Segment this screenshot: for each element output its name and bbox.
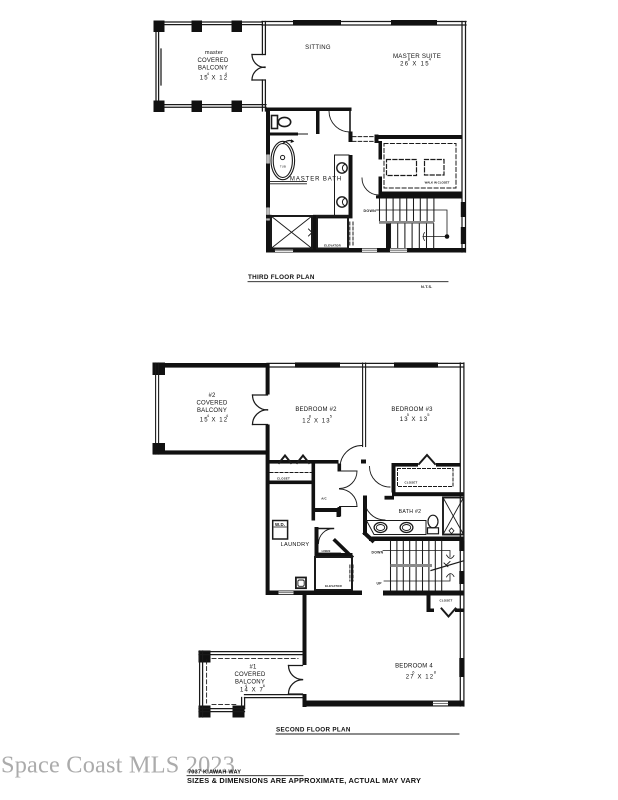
- svg-text:LAUNDRY: LAUNDRY: [281, 542, 310, 548]
- svg-text:N.T.S.: N.T.S.: [421, 285, 433, 289]
- svg-text:DOWN: DOWN: [372, 551, 384, 555]
- svg-text:12 X 13: 12 X 13: [302, 419, 330, 425]
- svg-text:13 X 13: 13 X 13: [400, 417, 428, 423]
- svg-text:LINEN: LINEN: [322, 549, 331, 553]
- svg-text:THIRD FLOOR PLAN: THIRD FLOOR PLAN: [248, 274, 315, 281]
- svg-text:7037 KIAWAH WAY: 7037 KIAWAH WAY: [188, 770, 241, 776]
- svg-text:CLOSET: CLOSET: [405, 481, 418, 485]
- svg-text:BALCONY: BALCONY: [235, 680, 265, 686]
- svg-text:SITTING: SITTING: [305, 45, 331, 51]
- svg-text:TUB: TUB: [280, 165, 286, 169]
- svg-text:15 X 12: 15 X 12: [200, 76, 228, 82]
- svg-text:#2: #2: [208, 393, 216, 399]
- svg-text:ELEVATOR: ELEVATOR: [324, 244, 342, 248]
- svg-text:BALCONY: BALCONY: [197, 408, 227, 414]
- svg-text:SECOND FLOOR PLAN: SECOND FLOOR PLAN: [276, 727, 351, 734]
- svg-text:W.D.: W.D.: [275, 522, 285, 527]
- svg-text:27 X 12: 27 X 12: [406, 675, 434, 681]
- svg-text:MASTER SUITE: MASTER SUITE: [393, 53, 441, 60]
- svg-text:15 X 12: 15 X 12: [200, 418, 228, 424]
- svg-text:BATH #2: BATH #2: [399, 509, 422, 515]
- svg-text:DOWN: DOWN: [364, 209, 377, 213]
- svg-text:14 X 7: 14 X 7: [240, 688, 264, 694]
- svg-text:master: master: [205, 50, 223, 56]
- svg-text:A/C: A/C: [321, 497, 327, 501]
- svg-text:COVERED: COVERED: [197, 58, 229, 64]
- svg-text:SIZES & DIMENSIONS ARE APPROXI: SIZES & DIMENSIONS ARE APPROXIMATE, ACTU…: [187, 776, 421, 785]
- svg-text:UP: UP: [377, 582, 383, 586]
- svg-text:BALCONY: BALCONY: [198, 66, 228, 72]
- svg-text:26 X 15: 26 X 15: [400, 62, 430, 68]
- svg-text:ELEVATOR: ELEVATOR: [325, 584, 343, 588]
- svg-text:COVERED: COVERED: [234, 672, 266, 678]
- svg-text:WALK IN CLOSET: WALK IN CLOSET: [425, 181, 450, 185]
- svg-text:COVERED: COVERED: [196, 401, 228, 407]
- svg-text:#1: #1: [249, 665, 257, 671]
- svg-text:CLOSET: CLOSET: [440, 599, 453, 603]
- svg-text:BEDROOM #2: BEDROOM #2: [295, 407, 337, 413]
- svg-text:CLOSET: CLOSET: [277, 477, 290, 481]
